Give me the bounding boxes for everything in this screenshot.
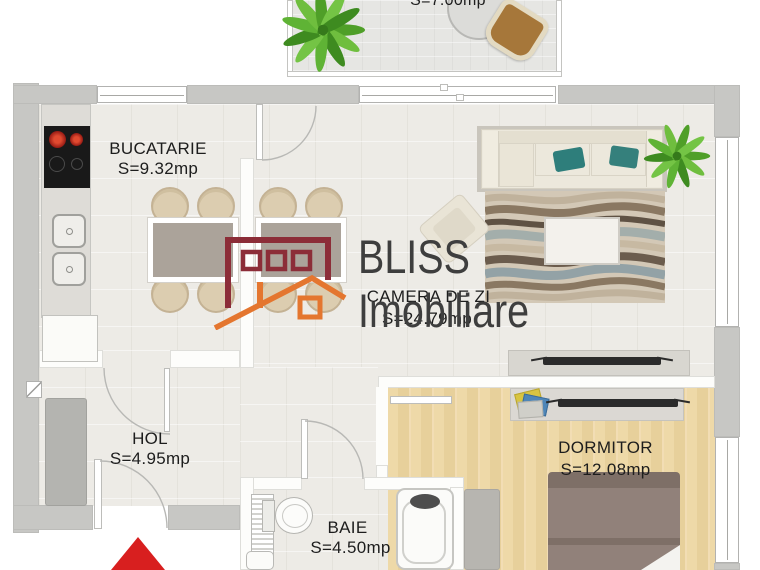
stove-burner	[70, 133, 83, 146]
stove-burner	[49, 131, 66, 148]
fridge-icon	[42, 315, 98, 362]
stove-burner	[49, 156, 65, 172]
sofa-armrest	[483, 131, 499, 187]
logo-house-icon	[205, 230, 355, 330]
bedroom-tv-icon	[558, 399, 678, 407]
bedroom-area-label: S=12.08mp	[543, 460, 668, 480]
bath-area-label: S=4.50mp	[298, 538, 403, 558]
balcony-area-label: S=7.00mp	[398, 0, 498, 10]
coffee-table-icon	[544, 217, 620, 265]
bed-body	[548, 484, 680, 570]
bed-fold	[548, 538, 680, 545]
bed-icon	[548, 472, 680, 570]
kitchen-area-label: S=9.32mp	[88, 159, 228, 179]
stove-burner	[71, 158, 83, 170]
sofa-pillow	[609, 145, 640, 169]
kitchen-name-label: BUCATARIE	[88, 139, 228, 159]
toilet-tank	[262, 500, 275, 532]
bath-name-label: BAIE	[305, 518, 390, 538]
floor-plan: S=7.00mp BUCATARIE S=9.32mp CAMERA DE ZI…	[0, 0, 760, 570]
sink-faucet	[66, 228, 73, 235]
logo-brand-name: BLISS	[358, 233, 470, 280]
kitchen-sink-icon	[50, 212, 88, 288]
wardrobe-icon	[45, 398, 87, 506]
bathtub-headrest	[410, 494, 440, 509]
stove-icon	[44, 126, 90, 188]
magazine-icon	[517, 400, 543, 419]
bathtub-icon	[396, 488, 454, 570]
logo-brand-suffix: Imobiliare	[358, 287, 529, 334]
hall-name-label: HOL	[110, 429, 190, 449]
tv-icon	[543, 357, 661, 365]
bathtub-inner	[402, 500, 446, 564]
living-plant-icon	[642, 110, 712, 202]
hall-area-label: S=4.95mp	[100, 449, 200, 469]
sofa-chaise	[499, 143, 534, 187]
bedside-bench-icon	[464, 489, 500, 570]
sofa-icon	[481, 129, 663, 189]
bedroom-name-label: DORMITOR	[543, 438, 668, 458]
sink-faucet	[66, 266, 73, 273]
bath-sink-icon	[246, 551, 274, 570]
